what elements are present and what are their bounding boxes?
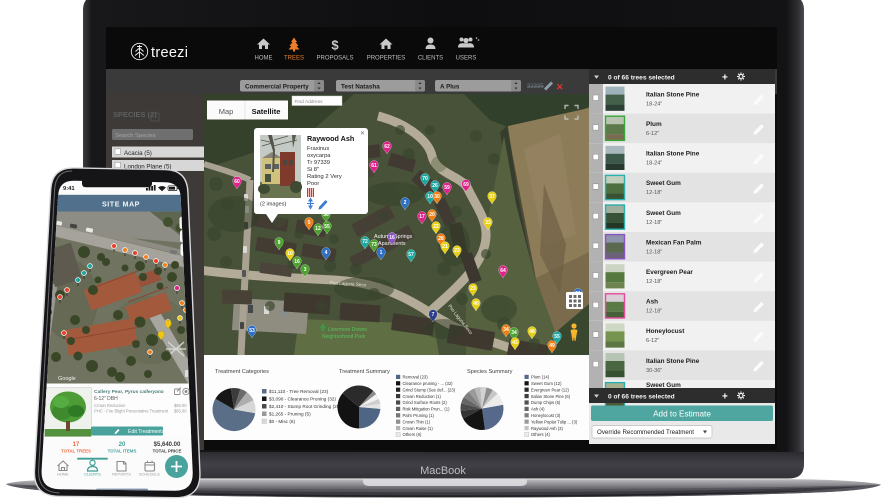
svg-text:$65.00: $65.00: [174, 403, 187, 408]
svg-text:57: 57: [408, 252, 414, 258]
svg-text:55: 55: [324, 224, 330, 230]
svg-text:21: 21: [442, 244, 448, 250]
svg-text:Raywood Ash: Raywood Ash: [307, 134, 354, 143]
svg-text:Search Species: Search Species: [115, 133, 156, 139]
svg-text:Italian Stone Pine: Italian Stone Pine: [646, 91, 700, 98]
svg-text:12-18": 12-18": [646, 309, 662, 315]
svg-text:12-18": 12-18": [646, 220, 662, 226]
svg-text:$5,640.00: $5,640.00: [154, 442, 181, 448]
svg-text:34: 34: [511, 330, 517, 336]
svg-text:Italian Stone Pine (6): Italian Stone Pine (6): [531, 394, 571, 399]
svg-text:Italian Stone Pine: Italian Stone Pine: [646, 151, 700, 158]
svg-text:43: 43: [512, 340, 518, 346]
svg-text:Sweet Gum: Sweet Gum: [646, 210, 681, 217]
svg-text:Commercial Property: Commercial Property: [245, 84, 309, 91]
svg-text:Neighborhood Park: Neighborhood Park: [322, 334, 366, 340]
svg-text:Grind Surface Roots (2): Grind Surface Roots (2): [403, 400, 448, 405]
svg-text:Google: Google: [58, 376, 76, 382]
svg-text:✕: ✕: [360, 131, 365, 137]
svg-text:$: $: [331, 38, 339, 53]
svg-text:4: 4: [325, 250, 328, 256]
svg-text:49: 49: [549, 343, 555, 349]
svg-text:Mexican Fan Palm: Mexican Fan Palm: [646, 239, 702, 246]
svg-text:Honeylocust (3): Honeylocust (3): [531, 413, 561, 418]
svg-text:SITE MAP: SITE MAP: [102, 200, 140, 209]
svg-text:$1,265 - Pruning (5): $1,265 - Pruning (5): [269, 412, 311, 417]
svg-text:12-18": 12-18": [646, 249, 662, 255]
svg-text:20: 20: [119, 442, 126, 448]
svg-text:REPORTS: REPORTS: [112, 472, 131, 477]
svg-text:Species Summary: Species Summary: [467, 369, 513, 375]
svg-text:✕: ✕: [556, 82, 564, 92]
svg-text:Plum: Plum: [646, 121, 662, 128]
svg-text:PHC - Fire Blight Preventative: PHC - Fire Blight Preventative Treatment: [94, 409, 169, 414]
svg-text:Removal (23): Removal (23): [403, 375, 429, 380]
svg-text:Risk Mitigation Prun... (1): Risk Mitigation Prun... (1): [403, 407, 451, 412]
svg-text:Crown Reduction (1): Crown Reduction (1): [403, 394, 442, 399]
svg-text:CLIENTS: CLIENTS: [418, 56, 443, 62]
svg-text:$0 - Misc (6): $0 - Misc (6): [269, 419, 295, 424]
svg-text:0 of 66 trees selected: 0 of 66 trees selected: [608, 394, 675, 401]
svg-text:A Plus: A Plus: [440, 84, 460, 91]
svg-text:Add to Estimate: Add to Estimate: [653, 410, 711, 419]
svg-text:SCHEDULE: SCHEDULE: [139, 472, 161, 477]
svg-text:70: 70: [422, 176, 428, 182]
svg-text:Crown Thin (1): Crown Thin (1): [403, 419, 431, 424]
svg-text:18-24": 18-24": [646, 161, 662, 167]
svg-text:5: 5: [308, 220, 311, 226]
svg-text:Find Address: Find Address: [295, 99, 324, 105]
svg-text:18-24": 18-24": [646, 101, 662, 107]
svg-text:Fraxinus: Fraxinus: [307, 146, 329, 152]
svg-text:Treatment Categories: Treatment Categories: [215, 369, 269, 375]
svg-text:TOTAL PRICE: TOTAL PRICE: [153, 449, 182, 454]
svg-text:TOTAL TREES: TOTAL TREES: [61, 449, 91, 454]
svg-text:Evergreen Pear: Evergreen Pear: [646, 269, 693, 276]
svg-text:$3,090 - Clearance Pruning (32: $3,090 - Clearance Pruning (32): [269, 397, 336, 402]
svg-text:Livermore Downs: Livermore Downs: [328, 327, 367, 333]
svg-text:Map: Map: [219, 107, 234, 116]
svg-text:16: 16: [389, 235, 395, 241]
svg-text:Rating 2 Very: Rating 2 Very: [307, 174, 342, 180]
svg-text:TOTAL ITEMS: TOTAL ITEMS: [108, 449, 137, 454]
svg-text:PROPERTIES: PROPERTIES: [367, 56, 406, 62]
svg-text:Callery Pear, Pyrus calleryana: Callery Pear, Pyrus calleryana: [94, 389, 164, 395]
svg-text:Crown Raise (1): Crown Raise (1): [403, 426, 434, 431]
svg-text:59: 59: [444, 185, 450, 191]
svg-text:48: 48: [529, 329, 535, 335]
svg-text:PROPOSALS: PROPOSALS: [316, 56, 353, 62]
svg-text:9:41: 9:41: [63, 186, 75, 192]
svg-text:33: 33: [485, 220, 491, 226]
svg-text:34: 34: [503, 327, 509, 333]
svg-text:62: 62: [384, 144, 390, 150]
svg-text:53: 53: [249, 328, 255, 334]
svg-text:Poor: Poor: [307, 181, 319, 187]
svg-text:oxycarpa: oxycarpa: [307, 153, 331, 159]
svg-text:Palm Pruning (1): Palm Pruning (1): [403, 413, 435, 418]
svg-text:73: 73: [371, 242, 377, 248]
svg-text:USERS: USERS: [456, 56, 477, 62]
svg-text:Grind Stump (See def... (23): Grind Stump (See def... (23): [403, 387, 456, 392]
svg-text:28: 28: [438, 236, 444, 242]
svg-text:Dump Chips (6): Dump Chips (6): [531, 400, 561, 405]
svg-text:Sweet Gum (12): Sweet Gum (12): [531, 381, 562, 386]
svg-text:61: 61: [371, 163, 377, 169]
svg-text:30-36": 30-36": [646, 368, 662, 374]
svg-text:Override Recommended Treatment: Override Recommended Treatment: [597, 429, 694, 436]
svg-text:12-18": 12-18": [646, 190, 662, 196]
svg-text:$2,410 - Stump Root Grinding (: $2,410 - Stump Root Grinding (25): [269, 404, 341, 409]
svg-text:+: +: [722, 392, 728, 403]
svg-text:0 of 66 trees selected: 0 of 66 trees selected: [608, 75, 675, 82]
svg-text:6-12" DBH: 6-12" DBH: [94, 396, 118, 402]
svg-text:7: 7: [432, 312, 435, 318]
svg-text:3: 3: [304, 267, 307, 273]
svg-text:$11,110 - Tree Removal (23): $11,110 - Tree Removal (23): [269, 389, 329, 394]
svg-text:12: 12: [315, 226, 321, 232]
svg-text:69: 69: [463, 182, 469, 188]
svg-text:Si 8": Si 8": [307, 167, 319, 173]
svg-text:Ash (4): Ash (4): [531, 407, 545, 412]
svg-text:Plum (14): Plum (14): [531, 375, 550, 380]
svg-text:23: 23: [454, 248, 460, 254]
svg-text:37: 37: [489, 194, 495, 200]
svg-text:Tr 97339: Tr 97339: [307, 160, 330, 166]
svg-text:Crown Reduction: Crown Reduction: [94, 403, 126, 408]
svg-text:26: 26: [432, 183, 438, 189]
svg-text:HOME: HOME: [255, 56, 273, 62]
svg-text:Clearance pruning - ... (32): Clearance pruning - ... (32): [403, 381, 454, 386]
svg-text:Sweet Gum: Sweet Gum: [646, 180, 681, 187]
svg-text:12-18": 12-18": [646, 279, 662, 285]
svg-text:Others (6): Others (6): [403, 432, 422, 437]
svg-text:9: 9: [278, 240, 281, 246]
svg-text:20: 20: [429, 212, 435, 218]
svg-text:Test Natasha: Test Natasha: [341, 84, 380, 91]
svg-text:Sweet Gum: Sweet Gum: [646, 382, 681, 389]
svg-text:Evergreen Pear (12): Evergreen Pear (12): [531, 387, 570, 392]
svg-text:23: 23: [470, 286, 476, 292]
svg-text:55: 55: [554, 334, 560, 340]
svg-text:Satellite: Satellite: [252, 107, 281, 116]
svg-text:30: 30: [434, 194, 440, 200]
svg-text:40: 40: [473, 301, 479, 307]
svg-text:Others (4): Others (4): [531, 432, 550, 437]
svg-text:22: 22: [433, 224, 439, 230]
svg-text:Yellow Poplar Tulip ... (3): Yellow Poplar Tulip ... (3): [531, 419, 578, 424]
svg-text:60: 60: [234, 179, 240, 185]
svg-text:CLIENTS: CLIENTS: [84, 472, 101, 477]
svg-text:(2 images): (2 images): [260, 202, 287, 208]
svg-text:10: 10: [427, 194, 433, 200]
svg-text:Ash: Ash: [646, 299, 658, 306]
svg-text:16: 16: [294, 259, 300, 265]
svg-text:TREES: TREES: [284, 56, 304, 62]
svg-text:Raywood Ash (3): Raywood Ash (3): [531, 426, 563, 431]
svg-text:+: +: [722, 73, 728, 84]
svg-text:17: 17: [73, 442, 80, 448]
svg-text:2: 2: [404, 200, 407, 206]
svg-text:1: 1: [380, 250, 383, 256]
svg-text:6-12": 6-12": [646, 338, 659, 344]
svg-text:64: 64: [500, 268, 506, 274]
svg-text:Italian Stone Pine: Italian Stone Pine: [646, 358, 700, 365]
svg-text:Edit Treatments: Edit Treatments: [128, 429, 165, 435]
svg-text:6-12": 6-12": [646, 131, 659, 137]
svg-text:72: 72: [362, 239, 368, 245]
svg-text:HOME: HOME: [57, 472, 69, 477]
svg-text:Honeylocust: Honeylocust: [646, 328, 685, 335]
svg-text:MacBook: MacBook: [420, 465, 466, 477]
svg-text:treezi: treezi: [151, 45, 188, 61]
svg-text:10: 10: [287, 251, 293, 257]
svg-text:Treatment Summary: Treatment Summary: [339, 369, 390, 375]
svg-text:32335: 32335: [527, 84, 544, 90]
svg-text:$65.00: $65.00: [174, 409, 187, 414]
svg-text:17: 17: [419, 214, 425, 220]
